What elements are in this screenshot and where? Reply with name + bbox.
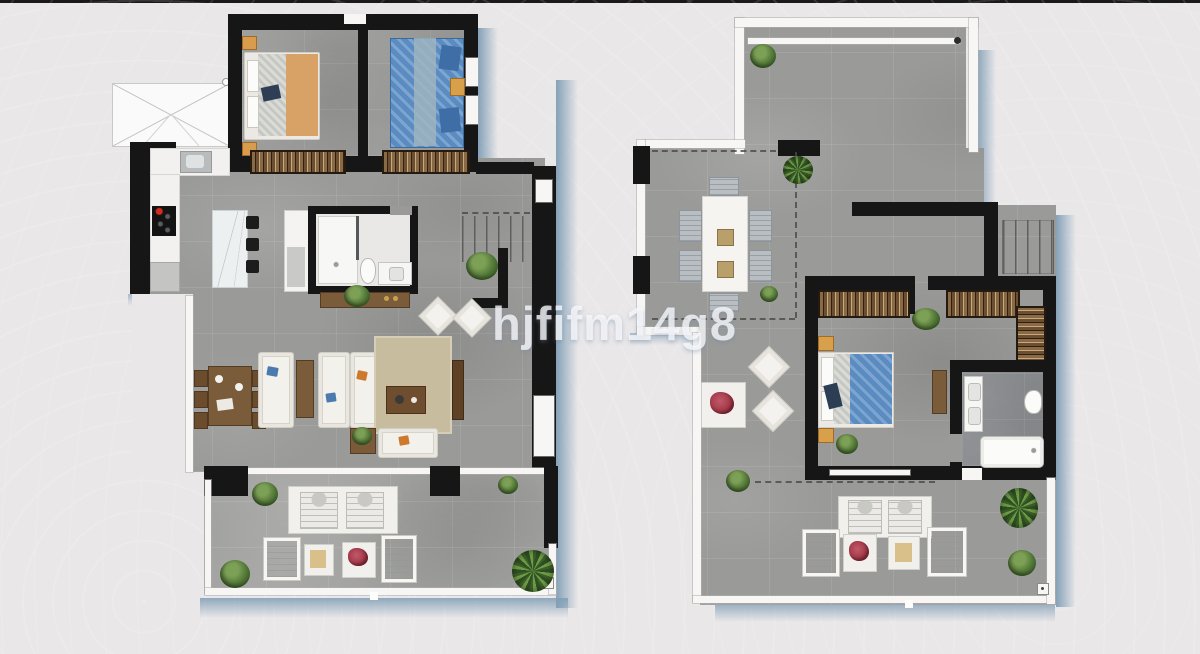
bathroom-door-gap [950,434,962,462]
terrace-table [888,536,920,570]
wardrobe [818,290,910,318]
toilet [1024,390,1042,414]
pillar [633,256,650,294]
nightstand [818,336,834,351]
terrace-wall [735,18,978,27]
plant [912,308,940,330]
terrace-wall [645,140,745,148]
bedroom-wall [805,276,818,480]
gate-marker [905,600,913,608]
wardrobe [1016,306,1046,368]
glass-balustrade [748,38,960,44]
terrace-dashed-line [755,481,935,483]
corner-marker [1037,583,1049,595]
plant [760,286,778,302]
bench [932,370,947,414]
placemat [717,261,734,278]
wardrobe [946,290,1020,318]
plant [836,434,858,454]
bedroom-wall [928,276,1056,290]
flower-pot [849,541,869,561]
outdoor-chair [749,250,772,282]
bed-blanket-blue [850,354,892,424]
table-cushion [895,543,912,562]
palm-plant [783,156,813,184]
hall-wall [852,202,998,216]
staircase [1002,220,1054,274]
shadow [1056,215,1076,607]
marker-dot [1041,587,1044,590]
sliding-door-glass [830,470,910,475]
basin [968,407,981,425]
watermark-text: hjfifm14g8 [492,296,737,351]
outdoor-chair [679,250,702,282]
terrace-chair [803,530,839,576]
outdoor-chair [679,210,702,242]
plant [1008,550,1036,576]
double-vanity [964,376,983,432]
spotlight-dot [954,37,961,44]
hall-wall [984,202,998,278]
plant [726,470,750,492]
bedroom-wall [805,276,913,290]
bathroom-wall [950,360,962,480]
floor-plan-image: hjfifm14g8 [0,0,1200,654]
outdoor-dining-table [702,196,748,292]
outdoor-chair [709,177,739,196]
outdoor-chair [749,210,772,242]
terrace-wall [735,18,744,154]
terrace-chair [928,528,966,576]
balustrade [693,596,1055,603]
covered-area-dashed-line [652,150,776,152]
shadow [715,602,1055,622]
plant [750,44,776,68]
terrace-wall [969,18,978,152]
palm-plant [1000,488,1038,528]
sun-lounger [848,500,882,534]
balustrade [693,333,701,601]
placemat [717,229,734,246]
bathtub [980,436,1044,468]
bathroom-wall [950,360,1050,372]
flower-pot [710,392,734,414]
nightstand [818,428,834,443]
wall-segment [778,140,820,156]
basin [968,383,981,401]
pillar [633,146,650,184]
sun-lounger [888,500,922,534]
bed-pillow [821,357,834,387]
